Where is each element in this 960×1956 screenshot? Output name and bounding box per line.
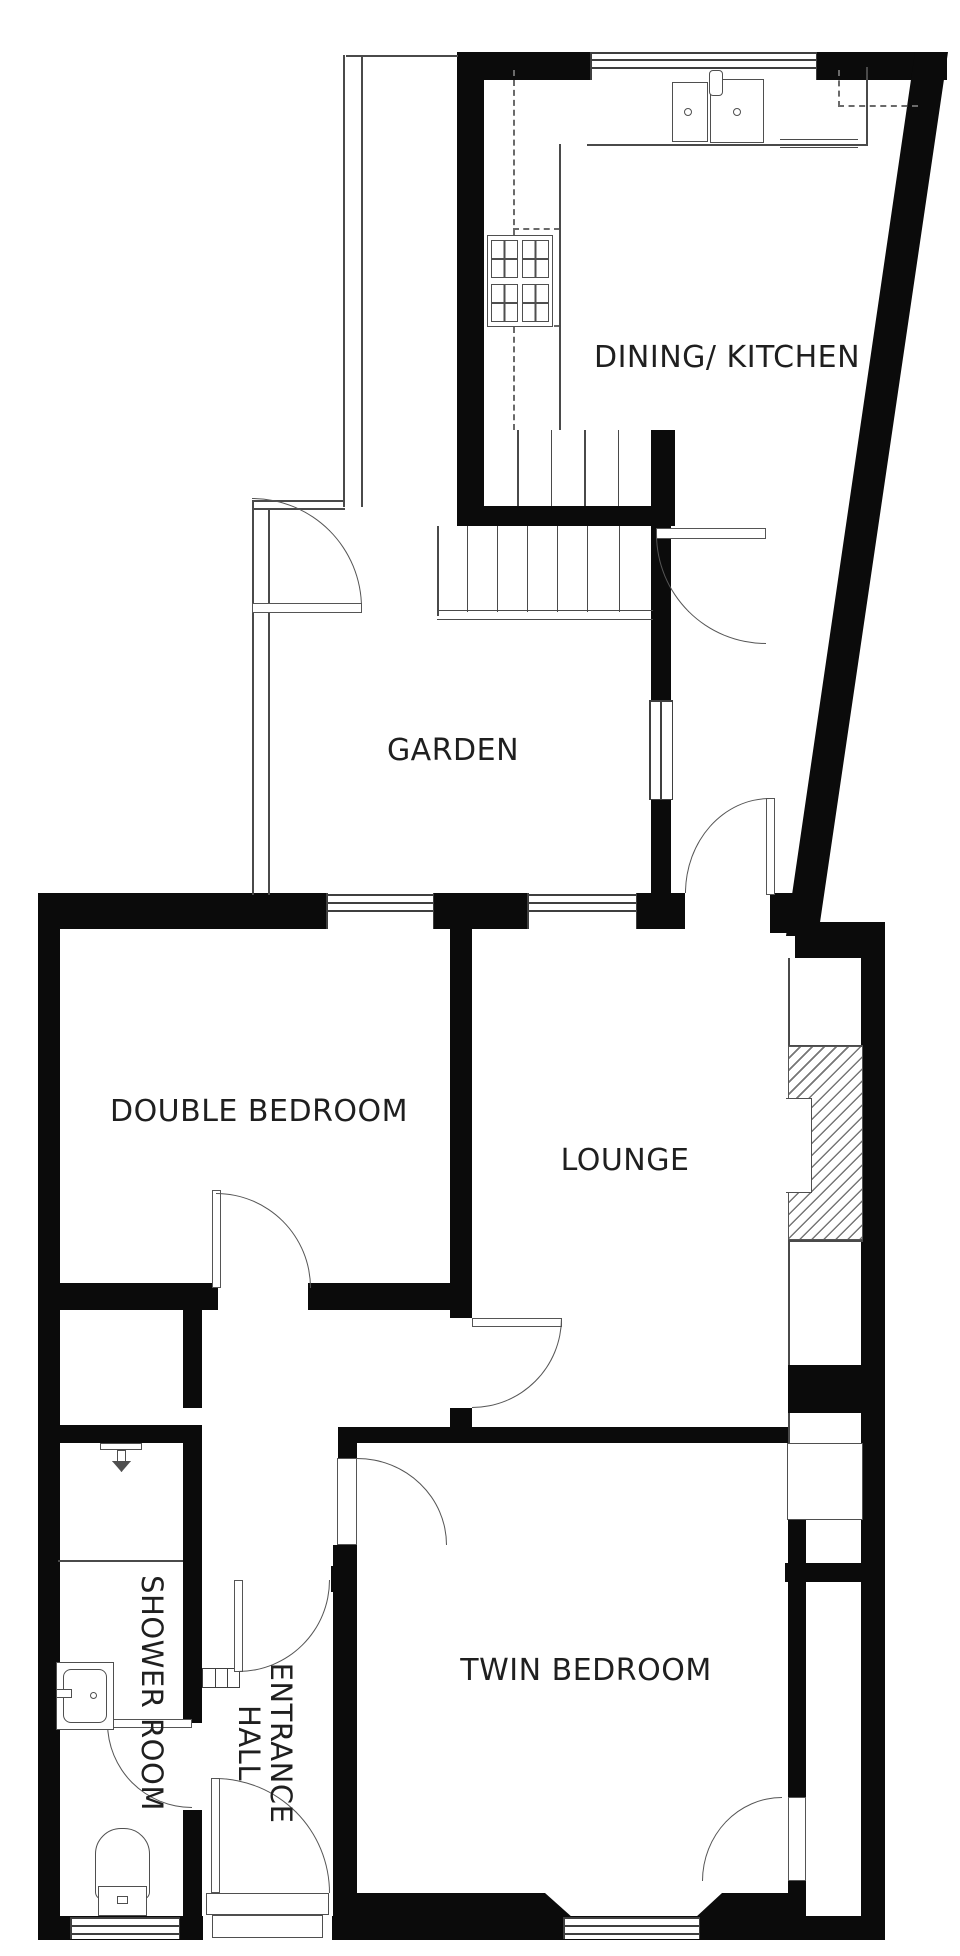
basin-tap-icon (56, 1689, 72, 1698)
shower-mixer-icon (100, 1443, 142, 1450)
door-arc (656, 534, 766, 644)
shower-mixer-icon (117, 1450, 126, 1462)
double-bedroom-bottom-wall (60, 1283, 218, 1310)
staircase-garden-steps (437, 526, 651, 612)
stair-landing-wall (457, 506, 675, 526)
shower-room-wall (183, 1810, 202, 1918)
alcove-edge (788, 1240, 863, 1242)
twin-bedroom-right-wall (788, 1520, 806, 1563)
shower-head-icon (112, 1461, 131, 1472)
counter-edge (559, 144, 561, 430)
shower-room-wall (183, 1443, 202, 1723)
room-label-entrance-hall: ENTRANCE HALL (227, 1653, 297, 1833)
boundary-line (361, 55, 363, 507)
room-label-dining-kitchen: DINING/ KITCHEN (557, 340, 897, 375)
garden-gate-leaf (252, 603, 362, 613)
cupboard-top-wall (785, 1563, 880, 1582)
double-bedroom-bottom-wall (308, 1283, 457, 1310)
twin-bay-window (563, 1917, 700, 1939)
room-label-lounge: LOUNGE (495, 1143, 755, 1178)
chimney-block (788, 1365, 878, 1413)
bedroom-lounge-wall (450, 929, 472, 1318)
passage-window (649, 700, 673, 800)
bay-wedge (695, 1893, 722, 1918)
cupboard-wall (55, 1425, 202, 1443)
door-leaf (788, 1797, 806, 1881)
cupboard-left-wall (788, 1881, 806, 1918)
flat-top-wall (637, 893, 685, 929)
garden-gate-arc (252, 498, 362, 608)
room-label-double-bedroom: DOUBLE BEDROOM (99, 1094, 419, 1129)
recess-box (787, 1443, 863, 1520)
sink-drain-icon (684, 108, 692, 116)
room-label-garden: GARDEN (323, 733, 583, 768)
shower-room-window (70, 1917, 180, 1939)
floor-plan: DINING/ KITCHEN GARDEN DOUBLE BEDROOM LO… (0, 0, 960, 1956)
twin-bedroom-bottom-wall (722, 1893, 788, 1918)
alcove-edge (788, 1413, 790, 1443)
shower-tray-line (58, 1560, 183, 1562)
door-arc (685, 798, 770, 893)
wall-unit-dashed (838, 70, 840, 107)
flat-right-wall (861, 950, 885, 1940)
counter-dashed (513, 228, 560, 230)
kitchen-window (590, 52, 817, 80)
kitchen-left-wall (457, 52, 484, 506)
front-door-step (206, 1893, 329, 1915)
flat-top-wall (434, 893, 527, 929)
stove-burner-icon (522, 284, 549, 322)
stove-burner-icon (522, 240, 549, 278)
toilet-flush-icon (117, 1896, 128, 1904)
cupboard-left-wall (788, 1582, 806, 1797)
twin-bedroom-bottom-wall (357, 1893, 545, 1918)
door-leaf (337, 1458, 357, 1545)
wall-unit-dashed (838, 105, 918, 107)
lounge-bottom-wall (338, 1427, 788, 1443)
kitchen-tap-icon (709, 70, 723, 96)
steps-side-edge (437, 526, 439, 616)
flat-top-wall (38, 893, 326, 929)
bay-wedge (545, 1893, 573, 1918)
cupboard-wall (183, 1310, 202, 1408)
door-arc (472, 1318, 562, 1408)
counter-dashed (513, 70, 515, 235)
fireplace-recess (786, 1098, 812, 1193)
door-arc (357, 1458, 447, 1545)
passage-wall (651, 800, 671, 895)
lounge-window (527, 893, 637, 929)
room-label-shower-room: SHOWER ROOM (131, 1568, 169, 1818)
stove-burner-icon (491, 284, 518, 322)
flat-left-wall (38, 893, 60, 1940)
hall-right-wall (333, 1545, 357, 1916)
counter-dashed (513, 327, 515, 430)
double-bedroom-window (326, 893, 434, 929)
room-label-twin-bedroom: TWIN BEDROOM (436, 1653, 736, 1688)
twin-bedroom-left-wall (338, 1443, 357, 1458)
basin-drain-icon (90, 1692, 97, 1699)
sink-drain-icon (733, 108, 741, 116)
stove-burner-icon (491, 240, 518, 278)
staircase-upper-flight (484, 430, 651, 506)
door-arc (216, 1193, 311, 1288)
boundary-line (343, 55, 345, 507)
front-door-step (212, 1915, 323, 1938)
door-arc (702, 1797, 782, 1881)
steps-bottom-edge (437, 610, 653, 620)
worktop-edge (780, 139, 858, 148)
stair-side-wall (651, 430, 675, 526)
